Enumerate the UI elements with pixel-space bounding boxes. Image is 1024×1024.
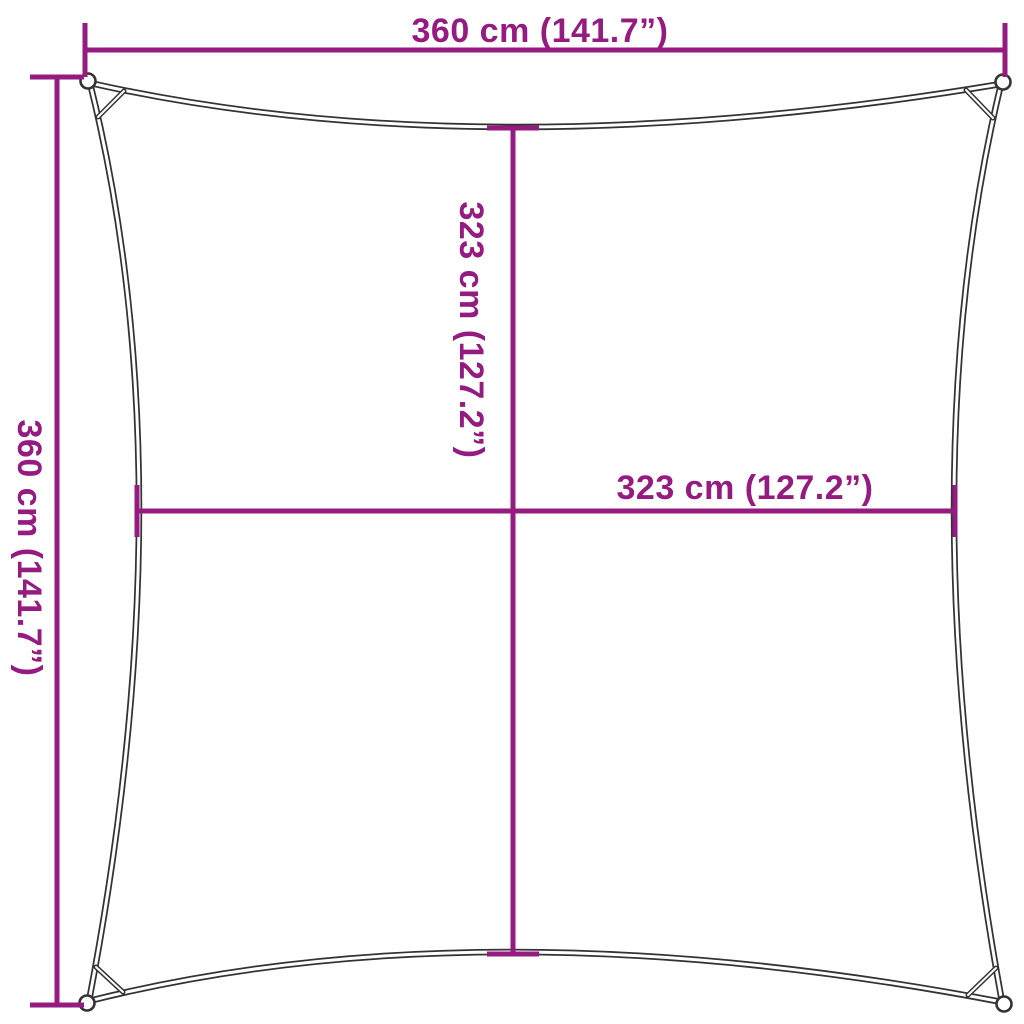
- sail-edge-bottom: [89, 952, 1002, 1002]
- dimension-label-inner-width: 323 cm (127.2”): [617, 469, 874, 507]
- dimension-top-width: 360 cm (141.7”): [85, 12, 1005, 77]
- shade-sail-dimension-diagram: 360 cm (141.7”) 360 cm (141.7”) 323 cm (…: [0, 0, 1024, 1024]
- sail-edge-right: [954, 84, 1002, 1002]
- corner-stitching: [96, 90, 996, 995]
- dimension-inner-width: 323 cm (127.2”): [137, 469, 955, 537]
- corner-ring-bottom-right: [997, 997, 1012, 1012]
- diagram-canvas: 360 cm (141.7”) 360 cm (141.7”) 323 cm (…: [0, 0, 1024, 1024]
- sail-edge-left: [89, 83, 139, 1001]
- dimension-inner-height: 323 cm (127.2”): [452, 128, 539, 954]
- dimension-label-left-height: 360 cm (141.7”): [10, 420, 48, 677]
- sail-outline: [80, 74, 1012, 1012]
- dimension-left-height: 360 cm (141.7”): [10, 77, 84, 1005]
- dimension-label-top-width: 360 cm (141.7”): [412, 12, 669, 50]
- dimension-label-inner-height: 323 cm (127.2”): [452, 202, 490, 459]
